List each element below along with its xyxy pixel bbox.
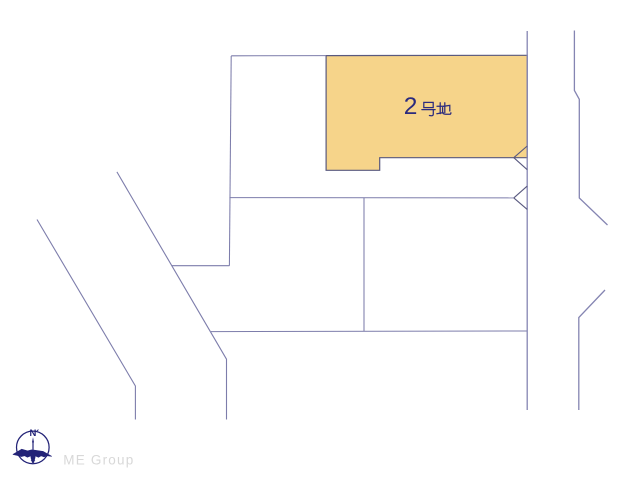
svg-text:ME Group: ME Group (63, 452, 134, 467)
svg-text:N: N (30, 428, 37, 439)
svg-text:2: 2 (404, 93, 418, 120)
